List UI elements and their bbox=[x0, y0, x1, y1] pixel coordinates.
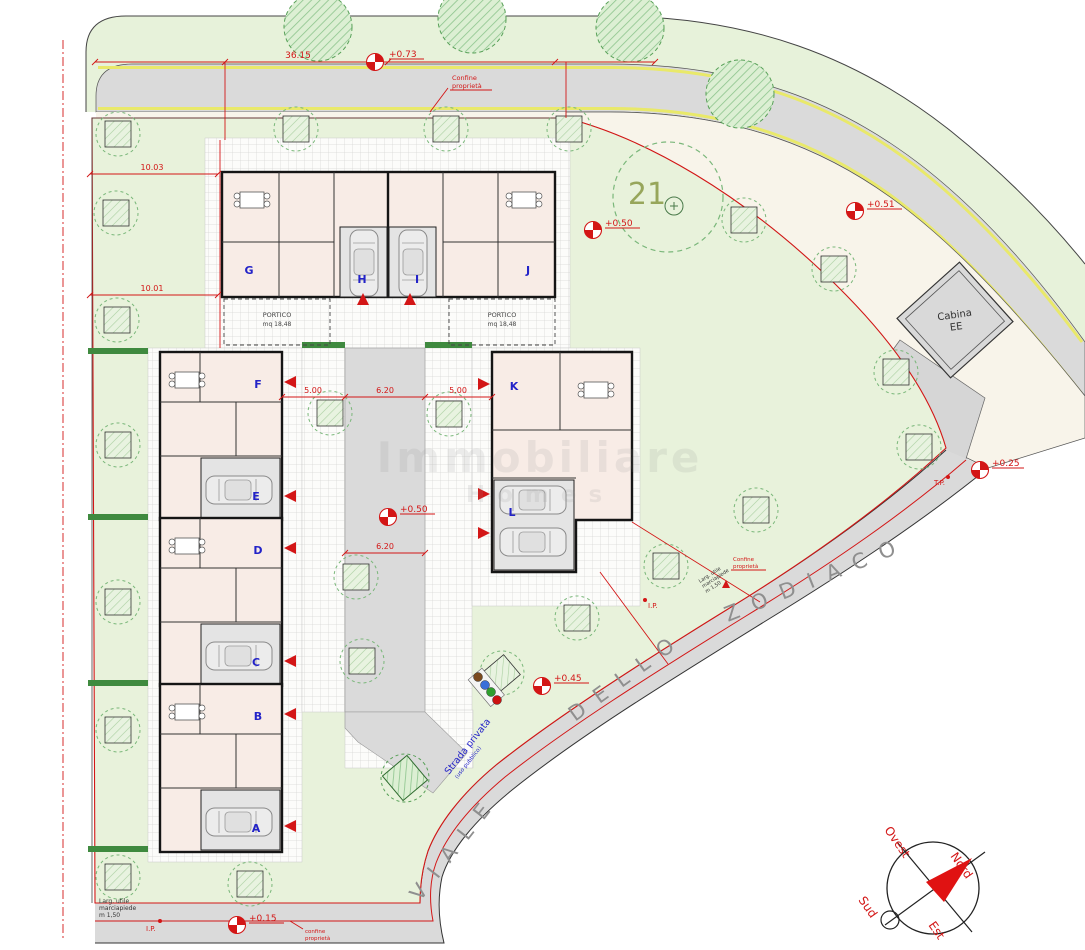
benchmark-label: +0.25 bbox=[992, 459, 1020, 469]
unit-label-I: I bbox=[415, 273, 419, 286]
sidewalk-note: marciapiede bbox=[99, 905, 136, 912]
sidewalk-note: Larg. utile bbox=[99, 898, 129, 905]
site-plan-drawing: PORTICO mq 18,48 PORTICO mq 18,48 G H I … bbox=[0, 0, 1085, 950]
compass-south: Sud bbox=[856, 894, 881, 921]
watermark-line1: Immobiliare bbox=[377, 433, 704, 482]
benchmark-label: +0.50 bbox=[400, 505, 428, 515]
car bbox=[350, 230, 378, 296]
compass-west: Ovest bbox=[882, 824, 914, 861]
unit-label-D: D bbox=[253, 544, 262, 557]
car bbox=[500, 528, 566, 556]
benchmark-label: +0.45 bbox=[554, 674, 582, 684]
tp-label: T.P. bbox=[933, 479, 945, 487]
car bbox=[206, 476, 272, 504]
building-top-GHIJ bbox=[222, 172, 555, 297]
car bbox=[399, 230, 427, 296]
dim-court-right: 5.00 bbox=[449, 386, 467, 395]
car bbox=[206, 808, 272, 836]
watermark-line2: Homes bbox=[466, 482, 614, 508]
building-left-FE bbox=[160, 352, 282, 520]
confine-label: Confine bbox=[733, 557, 755, 563]
unit-label-A: A bbox=[252, 822, 261, 835]
tree bbox=[706, 60, 774, 128]
benchmark-label: +0.50 bbox=[605, 219, 633, 229]
portico-area: mq 18,48 bbox=[488, 321, 517, 328]
site-plan-canvas: PORTICO mq 18,48 PORTICO mq 18,48 G H I … bbox=[0, 0, 1085, 950]
dim-court-mid: 6.20 bbox=[376, 386, 394, 395]
confine-label: Confine bbox=[452, 74, 477, 82]
dim-left-upper: 10.03 bbox=[141, 163, 164, 172]
portico-area: mq 18,48 bbox=[263, 321, 292, 328]
car bbox=[206, 642, 272, 670]
portico-label: PORTICO bbox=[263, 311, 292, 319]
dim-left-lower: 10.01 bbox=[141, 284, 164, 293]
lamp-post-label: I.P. bbox=[146, 925, 156, 933]
unit-label-E: E bbox=[252, 490, 260, 503]
dim-court-lower: 6.20 bbox=[376, 542, 394, 551]
unit-label-J: J bbox=[525, 264, 530, 277]
dim-top: 36.15 bbox=[285, 51, 311, 61]
unit-label-B: B bbox=[254, 710, 262, 723]
building-left-DC bbox=[160, 518, 282, 686]
unit-label-K: K bbox=[510, 380, 519, 393]
sidewalk-note: m 1,50 bbox=[99, 912, 120, 919]
unit-label-H: H bbox=[357, 273, 366, 286]
unit-label-G: G bbox=[244, 264, 253, 277]
compass-east: Est bbox=[926, 919, 948, 942]
portico-label: PORTICO bbox=[488, 311, 517, 319]
building-left-BA bbox=[160, 684, 282, 852]
unit-label-C: C bbox=[252, 656, 260, 669]
confine-label: proprietà bbox=[305, 935, 330, 942]
unit-label-F: F bbox=[254, 378, 262, 391]
benchmark-label: +0.73 bbox=[389, 50, 417, 60]
benchmark-label: +0.51 bbox=[867, 200, 895, 210]
benchmark-label: +0.15 bbox=[249, 914, 277, 924]
cabina-label: EE bbox=[949, 321, 963, 334]
compass-rose: Nord Ovest Sud Est bbox=[856, 824, 985, 942]
tree-21-number: 21 bbox=[628, 177, 666, 212]
confine-label: proprietà bbox=[733, 563, 758, 570]
confine-label: confine bbox=[305, 929, 326, 935]
confine-label: proprietà bbox=[452, 82, 482, 90]
lamp-post-label: I.P. bbox=[648, 602, 658, 610]
dim-court-left: 5.00 bbox=[304, 386, 322, 395]
